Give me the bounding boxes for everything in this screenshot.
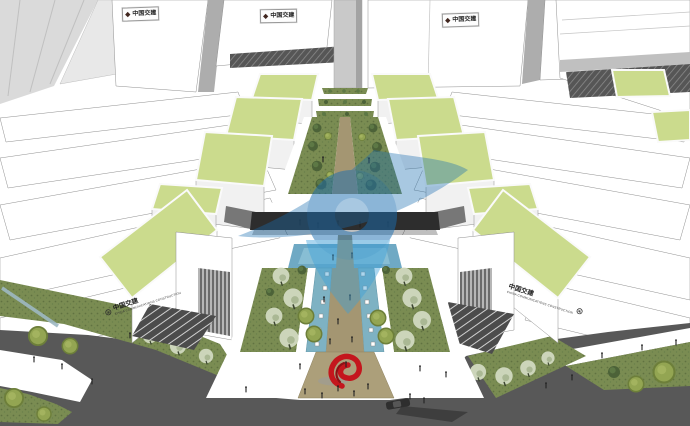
terraced-planters — [316, 88, 374, 117]
tree — [608, 366, 620, 378]
tree — [298, 266, 307, 275]
planter — [315, 342, 319, 346]
central-core-shade — [356, 0, 362, 88]
tower-sign-label: 中国交建 — [132, 10, 156, 17]
green-roof — [252, 74, 318, 100]
planter — [323, 286, 327, 290]
green-roof — [612, 70, 670, 97]
planter — [319, 314, 323, 318]
planter — [365, 300, 369, 304]
round-shrub — [628, 376, 643, 391]
tree — [369, 124, 378, 133]
round-shrub — [370, 310, 385, 325]
green-roof — [196, 132, 272, 186]
tower-sign-label: 中国交建 — [452, 16, 476, 23]
round-shrub — [325, 133, 332, 140]
company-emblem-icon: ⊛ — [104, 307, 114, 318]
tree — [312, 161, 323, 172]
company-logo-icon: ◆ — [263, 13, 269, 20]
tower-sign: ◆ 中国交建 — [122, 6, 160, 21]
green-roof — [372, 74, 438, 100]
round-shrub — [298, 308, 313, 323]
architectural-rendering-canvas: ◆ 中国交建 ◆ 中国交建 ◆ 中国交建 ⊛ 中国交建 CHINA COMMUN… — [0, 0, 690, 426]
round-shrub — [37, 407, 51, 421]
tree — [308, 141, 318, 151]
planter — [369, 328, 373, 332]
tree — [313, 124, 322, 133]
round-shrub — [359, 134, 366, 141]
green-roof — [652, 110, 690, 142]
planter — [371, 342, 375, 346]
round-shrub — [29, 327, 47, 345]
tower-sign: ◆ 中国交建 — [260, 9, 298, 24]
company-logo-icon: ◆ — [125, 11, 131, 18]
tower-sign-label: 中国交建 — [270, 13, 294, 19]
scene-svg — [0, 0, 690, 426]
round-shrub — [378, 328, 393, 343]
round-shrub — [306, 326, 321, 341]
tower-sign: ◆ 中国交建 — [442, 12, 480, 27]
company-logo-icon: ◆ — [445, 17, 451, 24]
round-shrub — [654, 362, 675, 383]
round-shrub — [62, 338, 77, 353]
round-shrub — [5, 389, 23, 407]
tree — [382, 266, 390, 274]
tree — [266, 288, 274, 296]
